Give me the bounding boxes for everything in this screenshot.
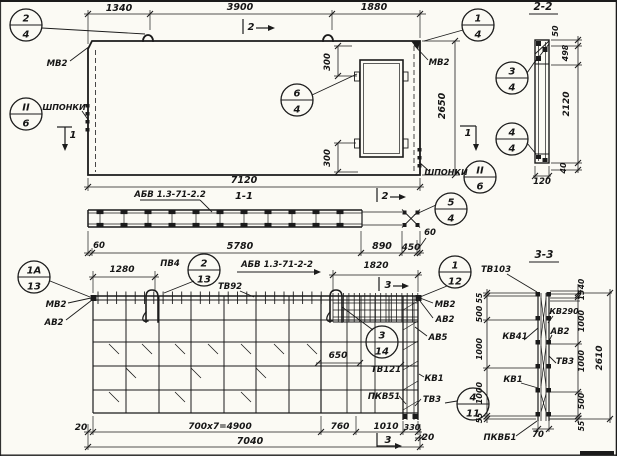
label-mv2-plan-right: МВ2	[435, 300, 456, 310]
line	[191, 368, 201, 378]
dim-700x7: 700x7=4900	[188, 422, 251, 432]
callout-II-6-left-bottom: 6	[23, 119, 30, 130]
marker-1-right: 1	[465, 128, 472, 139]
solid-mark	[403, 414, 408, 419]
marker-3-top: 3	[385, 280, 392, 291]
callout-6-4-top: 6	[294, 89, 301, 100]
arrowhead	[402, 283, 409, 289]
dim-450: 450	[401, 243, 421, 253]
solid-mark	[416, 223, 420, 227]
arrowhead	[395, 443, 402, 449]
dim-1010: 1010	[373, 422, 398, 432]
callout-1a-13-top: 1А	[27, 266, 42, 277]
line	[403, 361, 418, 370]
label-kv41: КВ41	[502, 332, 527, 342]
label-mv2-top-left: МВ2	[47, 59, 68, 69]
elevation-view	[88, 35, 420, 175]
dim-55-right: 55	[577, 421, 586, 431]
callout-1-4: 14	[462, 9, 494, 41]
arrowhead	[268, 25, 275, 31]
solid-mark	[418, 156, 422, 160]
solid-mark	[416, 211, 420, 215]
dim-650: 650	[329, 351, 348, 361]
solid-mark	[169, 223, 176, 227]
dimension-ticks-layer	[85, 11, 613, 450]
solid-mark	[241, 211, 248, 215]
dim-7120: 7120	[231, 175, 258, 186]
solid-mark	[313, 223, 320, 227]
solid-mark	[547, 316, 552, 321]
line	[420, 298, 433, 303]
dim-1880: 1880	[361, 2, 388, 13]
solid-mark	[313, 211, 320, 215]
label-tv103: ТВ103	[481, 265, 511, 275]
line	[42, 28, 145, 34]
solid-mark	[547, 388, 552, 393]
pv4-loop-left	[146, 290, 158, 322]
solid-mark	[86, 104, 90, 108]
solid-mark	[403, 223, 407, 227]
label-kv290: КВ290	[549, 307, 579, 316]
dim-2120: 2120	[562, 91, 572, 116]
solid-mark	[86, 128, 90, 132]
label-kv1-sec33: КВ1	[503, 375, 522, 385]
dim-55-left-top: 55	[475, 293, 484, 303]
line	[50, 281, 90, 297]
dim-20-right: 20	[422, 433, 435, 443]
label-av2-plan-left: АВ2	[44, 318, 64, 328]
callout-2-4-bottom: 4	[22, 30, 30, 41]
label-shponki-right: ШПОНКИ	[424, 168, 468, 177]
solid-mark	[536, 155, 541, 159]
solid-mark	[547, 340, 552, 345]
dim-330: 330	[404, 423, 421, 432]
dim-300-top: 300	[323, 53, 333, 71]
callout-II-6-right-top: II	[476, 166, 484, 177]
line	[109, 392, 119, 402]
solid-mark	[413, 414, 418, 419]
line	[142, 344, 152, 354]
line	[126, 368, 136, 378]
callout-1-12-bottom: 12	[448, 277, 462, 288]
dim-2650: 2650	[437, 92, 448, 119]
dim-120: 120	[533, 177, 551, 187]
dim-1000-left-1: 1000	[475, 337, 484, 360]
callout-5-4-bottom: 4	[447, 214, 455, 225]
callout-1-4-bottom: 4	[474, 30, 482, 41]
line	[208, 344, 218, 354]
dim-55-left-bottom: 55	[475, 413, 484, 423]
solid-mark	[86, 112, 90, 116]
solid-mark	[416, 295, 422, 301]
solid-mark	[193, 223, 200, 227]
label-pv4: ПВ4	[160, 259, 180, 269]
marker-3-bottom: 3	[385, 435, 392, 446]
solid-mark	[337, 211, 344, 215]
title-section-2-2: 2-2	[534, 1, 553, 13]
callout-II-6-left-top: II	[22, 103, 30, 114]
dim-1340: 1340	[106, 3, 133, 14]
solid-mark	[265, 223, 272, 227]
line	[70, 46, 90, 61]
solid-mark	[403, 211, 407, 215]
solid-mark	[169, 211, 176, 215]
label-pkvb1: ПКВБ1	[484, 433, 517, 443]
dim-20-left: 20	[75, 423, 88, 433]
line	[68, 298, 91, 303]
marker-1-left: 1	[70, 130, 77, 141]
dim-890: 890	[372, 241, 392, 252]
dim-300-bottom: 300	[323, 149, 333, 167]
solid-mark	[217, 211, 224, 215]
label-tv3-plan: ТВ3	[423, 395, 441, 405]
embed-tab	[355, 139, 360, 148]
callout-2-4-top: 2	[23, 14, 30, 25]
solid-mark	[289, 211, 296, 215]
callout-6-4-bottom: 4	[293, 105, 301, 116]
panel-working-drawing: 2414II6643444II6541А13213112314411 13403…	[0, 0, 617, 456]
solid-mark	[547, 412, 552, 417]
callout-4-4-bottom: 4	[508, 144, 516, 155]
label-abv-plan: АБВ 1.3-71-2-2	[240, 260, 313, 270]
dim-760: 760	[331, 422, 350, 432]
label-mv2-top-right: МВ2	[429, 58, 450, 68]
callout-3-4: 34	[496, 62, 528, 94]
line	[420, 301, 433, 318]
label-av5-plan: АВ5	[428, 333, 448, 343]
solid-mark	[536, 292, 541, 297]
callout-5-4-top: 5	[448, 198, 455, 209]
door-opening-inner	[364, 64, 400, 154]
solid-mark	[536, 340, 541, 345]
line	[241, 344, 251, 354]
label-tv92: ТВ92	[218, 282, 242, 292]
dim-1820: 1820	[363, 261, 388, 271]
callout-4-11: 411	[457, 388, 489, 420]
dim-2610: 2610	[595, 345, 605, 370]
line	[415, 327, 427, 336]
dim-1000-left-2: 1000	[475, 381, 484, 404]
dim-7040: 7040	[237, 436, 264, 447]
solid-mark	[543, 47, 548, 52]
solid-mark	[91, 295, 97, 301]
line	[175, 392, 185, 402]
callout-3-14-bottom: 14	[375, 347, 389, 358]
solid-mark	[543, 158, 548, 162]
drawing-sheet: 2414II6643444II6541А13213112314411 13403…	[0, 0, 617, 456]
label-pkv51: ПКВ51	[368, 392, 400, 402]
solid-mark	[193, 211, 200, 215]
callout-1-12: 112	[439, 256, 471, 288]
label-av2-sec33: АВ2	[550, 327, 570, 337]
embed-tab	[355, 72, 360, 81]
dim-1280: 1280	[109, 265, 134, 275]
solid-mark	[86, 120, 90, 124]
solid-mark	[265, 211, 272, 215]
dim-15-sec33: 15	[577, 290, 586, 300]
callout-2-13-top: 2	[201, 259, 208, 270]
label-kv1-plan: КВ1	[424, 374, 443, 384]
line	[521, 383, 538, 388]
callout-3-4-bottom: 4	[508, 83, 516, 94]
panel-outline	[88, 41, 420, 175]
solid-mark	[536, 41, 541, 46]
dim-1000-right-2: 1000	[577, 349, 586, 372]
callout-II-6-right-bottom: 6	[477, 182, 484, 193]
solid-mark	[145, 211, 152, 215]
callout-6-4: 64	[281, 84, 313, 116]
callout-3-14: 314	[366, 326, 398, 358]
dim-1000-right-1: 1000	[577, 309, 586, 332]
line	[164, 281, 194, 293]
solid-mark	[217, 223, 224, 227]
dim-40-sec22: 40	[559, 162, 568, 175]
line	[403, 301, 418, 310]
arrowhead	[62, 144, 68, 151]
line	[109, 344, 119, 354]
label-tv3-sec33: ТВ3	[556, 357, 574, 367]
callout-2-13-bottom: 13	[197, 275, 211, 286]
callout-2-13: 213	[188, 254, 220, 286]
dim-498: 498	[561, 44, 570, 62]
callout-1-12-top: 1	[452, 261, 459, 272]
corner-embed-mark	[411, 41, 420, 50]
solid-mark	[536, 364, 541, 369]
solid-mark	[418, 148, 422, 152]
solid-mark	[241, 223, 248, 227]
solid-mark	[97, 211, 104, 215]
callout-3-4-top: 3	[509, 67, 516, 78]
line	[419, 374, 424, 377]
line	[175, 344, 185, 354]
solid-mark	[580, 451, 614, 455]
line	[307, 344, 317, 354]
title-section-1-1: 1-1	[235, 191, 253, 202]
line	[241, 392, 251, 402]
arrowheads-layer	[62, 25, 479, 449]
line	[274, 344, 284, 354]
dim-70: 70	[532, 430, 544, 440]
arrowhead	[473, 144, 479, 151]
solid-mark	[145, 223, 152, 227]
label-shponki-left: ШПОНКИ	[42, 103, 86, 112]
line	[507, 274, 537, 292]
solid-mark	[121, 211, 128, 215]
line	[445, 401, 457, 403]
label-mv2-plan-left: МВ2	[46, 300, 67, 310]
door-opening	[360, 60, 403, 157]
line	[403, 381, 418, 390]
arrowhead	[314, 269, 321, 275]
callout-5-4: 54	[435, 193, 467, 225]
solid-mark	[547, 292, 552, 297]
marker-2-top: 2	[248, 22, 255, 33]
solid-mark	[536, 412, 541, 417]
callout-4-4: 44	[496, 123, 528, 155]
solid-mark	[289, 223, 296, 227]
label-abv-sec11: АБВ 1.3-71-2.2	[133, 190, 206, 200]
line	[312, 74, 357, 95]
dim-50-sec22: 50	[551, 25, 560, 37]
solid-mark	[536, 316, 541, 321]
callout-II-6-right: II6	[464, 161, 496, 193]
dim-60-left: 60	[93, 241, 105, 251]
callout-4-4-top: 4	[508, 128, 516, 139]
dim-60-right: 60	[424, 228, 436, 238]
marker-2-sec11: 2	[382, 191, 389, 202]
solid-mark	[547, 364, 552, 369]
solid-mark	[121, 223, 128, 227]
arrowhead	[399, 194, 406, 200]
solid-mark	[418, 164, 422, 168]
label-av2-plan-right: АВ2	[435, 315, 455, 325]
solid-mark	[536, 56, 541, 61]
solid-mark	[337, 223, 344, 227]
dim-500-left: 500	[475, 305, 484, 322]
callout-II-6-left: II6	[10, 98, 42, 130]
line	[414, 45, 428, 60]
dim-5780: 5780	[227, 241, 254, 252]
callout-2-4: 24	[10, 9, 42, 41]
dim-500-right: 500	[577, 392, 586, 409]
label-tv121: ТВ121	[371, 365, 401, 375]
callout-1-4-top: 1	[475, 14, 482, 25]
solid-mark	[536, 388, 541, 393]
title-section-3-3: 3-3	[535, 249, 554, 261]
line	[256, 368, 266, 378]
line	[420, 286, 447, 297]
dim-40-sec33: 40	[577, 279, 586, 289]
solid-mark	[97, 223, 104, 227]
callout-1a-13: 1А13	[18, 261, 50, 293]
callout-3-14-top: 3	[379, 331, 386, 342]
dim-3900: 3900	[227, 2, 254, 13]
callout-1a-13-bottom: 13	[27, 282, 41, 293]
